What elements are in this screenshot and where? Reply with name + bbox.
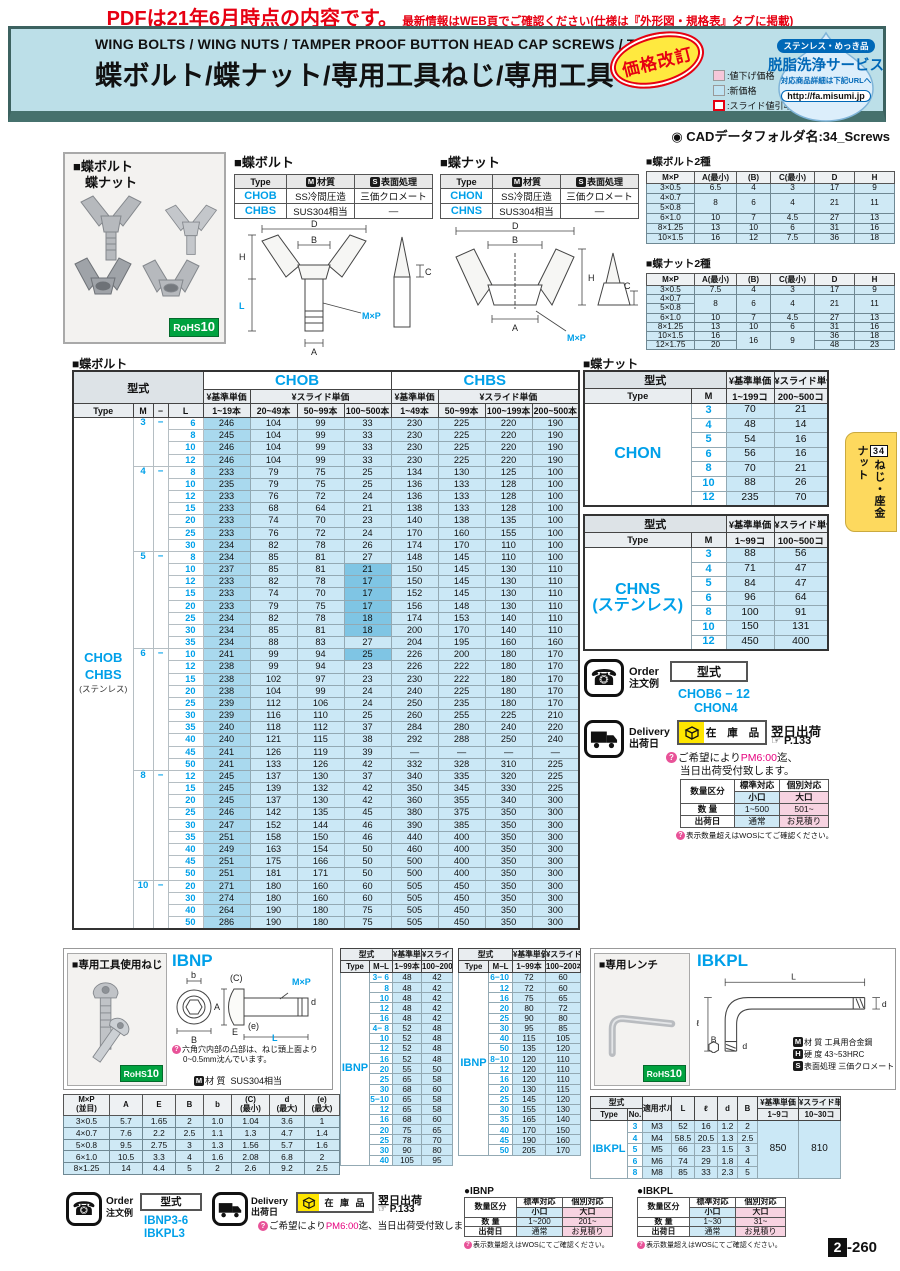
table-cell: —	[485, 746, 532, 758]
ibnp-name: IBNP	[172, 951, 213, 971]
table-cell: 12	[168, 491, 203, 503]
table-cell: 35	[168, 637, 203, 649]
table-cell: 112	[297, 722, 344, 734]
table-cell: 74	[250, 588, 297, 600]
table-cell: 7.5	[771, 234, 815, 244]
table-cell: 400	[438, 844, 485, 856]
table-cell: 350	[485, 856, 532, 868]
table-row: 数 量1~500501~	[681, 803, 829, 815]
table-cell: 78	[297, 612, 344, 624]
table-cell: 4	[737, 184, 771, 194]
table-cell: 11	[855, 194, 895, 214]
table-cell: 160	[438, 527, 485, 539]
table-cell: 190	[532, 454, 579, 466]
table-cell: 81	[297, 564, 344, 576]
table-cell: 58	[422, 1094, 453, 1104]
table-cell: 250	[391, 697, 438, 709]
table-cell: 21	[774, 404, 828, 419]
red-outline-swatch	[713, 100, 725, 111]
table-cell: 40	[168, 904, 203, 916]
table-row: IBNP6−107260	[459, 973, 581, 983]
order-labels: Order 注文例	[106, 1196, 133, 1219]
delivery-icon	[584, 720, 624, 758]
svg-text:M×P: M×P	[362, 311, 381, 321]
table-cell: 58	[422, 1104, 453, 1114]
table-cell: 12	[489, 1064, 513, 1074]
table-cell: 128	[485, 503, 532, 515]
table-cell: 105	[546, 1033, 581, 1043]
table-row: 出荷日通常お見積り	[638, 1227, 786, 1237]
table-cell: 50	[489, 1145, 513, 1155]
service-note: 対応商品詳細は下記URLへ	[761, 75, 891, 86]
wos-note: ?表示数量超えはWOSにてご確認ください。	[637, 1240, 782, 1250]
column-header: 適用ボルト	[643, 1097, 672, 1121]
table-cell: 12	[168, 576, 203, 588]
table-cell: −	[153, 418, 168, 467]
price-revision-badge: 価格改訂	[604, 22, 710, 98]
table-cell: 130	[485, 588, 532, 600]
ibkpl-wrench-photo	[597, 980, 687, 1064]
table-cell: 251	[203, 868, 250, 880]
truck-icon	[218, 1200, 242, 1219]
table-cell: 300	[532, 880, 579, 892]
table-cell: 65	[422, 1125, 453, 1135]
table-cell: 145	[513, 1094, 546, 1104]
table-cell: 246	[203, 807, 250, 819]
table-cell: 205	[513, 1145, 546, 1155]
table-cell: 75	[393, 1125, 422, 1135]
table-cell: 110	[532, 600, 579, 612]
table-cell: 130	[485, 576, 532, 588]
table-cell: 25	[489, 1094, 513, 1104]
order-label-jp: 注文例	[629, 679, 659, 691]
table-cell: 2.5	[738, 1132, 758, 1144]
side-tab-number: 34	[870, 445, 888, 457]
order-labels: Order 注文例	[629, 666, 659, 691]
table-cell: IBNP	[459, 973, 489, 1156]
table-cell: 35	[168, 831, 203, 843]
column-header: ℓ	[695, 1097, 718, 1121]
table-cell: 222	[438, 673, 485, 685]
table-cell: 70	[726, 404, 774, 419]
table-cell: −	[153, 649, 168, 771]
table-cell: 160	[297, 892, 344, 904]
table-cell: 8	[691, 462, 726, 477]
table-cell: 14	[110, 1163, 143, 1175]
table-cell: 65	[393, 1104, 422, 1114]
column-header: A(最小)	[695, 172, 737, 184]
table-row: 4×0.77.62.22.51.11.34.71.4	[64, 1127, 340, 1139]
delivery-label-en: Delivery	[629, 726, 670, 739]
table-cell: 94	[297, 661, 344, 673]
table-cell: 33	[344, 454, 391, 466]
table-row: 8×1.25131063116	[647, 322, 895, 331]
ibnp-photo-box: ■専用工具使用ねじ RoHS10	[67, 953, 167, 1086]
table-cell: 180	[485, 685, 532, 697]
page-number-rest: -260	[847, 1239, 877, 1256]
table-cell: 12	[168, 661, 203, 673]
table-cell: 4	[691, 418, 726, 433]
table-cell: 6	[691, 591, 726, 606]
table-cell: 47	[774, 577, 828, 592]
table-cell: 4	[628, 1132, 643, 1144]
model-box: 型式	[670, 661, 748, 682]
column-header: 100~500コ	[774, 533, 828, 548]
table-cell: 137	[250, 770, 297, 782]
table-cell: 15	[168, 783, 203, 795]
table-cell: 16	[489, 1074, 513, 1084]
table-cell: 220	[485, 430, 532, 442]
table-cell: 16	[370, 1013, 393, 1023]
table-cell: 48	[393, 973, 422, 983]
table-cell: 12×1.75	[647, 341, 695, 350]
table-cell: 1.6	[204, 1151, 232, 1163]
table-cell: 140	[546, 1114, 581, 1124]
table-cell: 166	[297, 856, 344, 868]
table-cell: 116	[250, 710, 297, 722]
table-cell: 155	[485, 527, 532, 539]
table-row: 6×1.01074.52713	[647, 313, 895, 322]
table-cell: 234	[203, 624, 250, 636]
table-cell: 33	[344, 442, 391, 454]
table-cell: 70	[297, 588, 344, 600]
table-cell: 35	[168, 722, 203, 734]
table-cell: 190	[250, 904, 297, 916]
column-header: Type	[584, 533, 691, 548]
table-cell: 247	[203, 819, 250, 831]
table-row: 4×0.78642111	[647, 295, 895, 304]
table-cell: 小口	[690, 1207, 736, 1217]
table-cell: 220	[485, 418, 532, 430]
table-cell: 6×1.0	[647, 313, 695, 322]
bolt-type-table: Type M材質 S表面処理 CHOBSS冷間圧造三価クロメートCHBSSUS3…	[234, 174, 433, 219]
table-cell: 20	[489, 1084, 513, 1094]
table-cell: 48	[726, 418, 774, 433]
rohs-badge: RoHS10	[643, 1065, 686, 1082]
table-cell: 4	[133, 466, 153, 551]
table-cell: 3	[771, 184, 815, 194]
material-badge: M	[194, 1076, 204, 1086]
stock-cube	[679, 722, 704, 743]
table-cell: 45	[489, 1135, 513, 1145]
page-number: 2-260	[828, 1238, 877, 1257]
table-cell: 226	[391, 661, 438, 673]
column-header: 200~500コ	[774, 389, 828, 404]
table-cell: 241	[203, 649, 250, 661]
column-header: (B)	[737, 274, 771, 286]
table-cell: 標準対応	[735, 780, 780, 792]
table-cell: 10	[168, 564, 203, 576]
table-cell: 50	[168, 758, 203, 770]
table-cell: 251	[203, 831, 250, 843]
table-cell: 99	[250, 649, 297, 661]
spec-line: M材 質 工具用合金鋼	[793, 1037, 897, 1049]
table-cell: 2	[176, 1116, 204, 1128]
column-header: 型式	[73, 371, 203, 404]
table-cell: 8	[168, 551, 203, 563]
table-cell: 5	[691, 433, 726, 448]
table-cell: 8	[691, 606, 726, 621]
table-cell: 148	[438, 600, 485, 612]
table-cell: 110	[546, 1074, 581, 1084]
table-cell: 133	[438, 491, 485, 503]
table-cell: 300	[532, 807, 579, 819]
table-cell: 31	[815, 322, 855, 331]
column-header: D	[815, 172, 855, 184]
table-cell: SS冷間圧造	[493, 189, 561, 204]
table-cell: 79	[250, 600, 297, 612]
column-header: 型式	[341, 949, 393, 961]
table-cell: 30	[168, 710, 203, 722]
table-cell: 160	[485, 637, 532, 649]
table-cell: 74	[250, 515, 297, 527]
table-cell: 450	[438, 904, 485, 916]
table-cell: 数 量	[681, 803, 735, 815]
table-cell: 2	[204, 1163, 232, 1175]
table-cell: 4×0.7	[647, 194, 695, 204]
table-cell: 225	[438, 442, 485, 454]
table-cell: 238	[203, 685, 250, 697]
table-cell: 163	[250, 844, 297, 856]
table-cell: 180	[250, 880, 297, 892]
ibnp-dims-table: M×P (並目)A EB b(C) (最小) d (最大)(e) (最大) 3×…	[63, 1094, 340, 1175]
column-header: 50~99本	[297, 404, 344, 418]
svg-text:A: A	[311, 347, 317, 357]
table-cell: 1~500	[735, 803, 780, 815]
ibnp-section: ■専用工具使用ねじ RoHS10 IBNP b B (C) A d (e) E …	[63, 948, 333, 1090]
table-cell: 3×0.5	[64, 1116, 110, 1128]
table-cell: 大口	[780, 791, 829, 803]
table-cell: 160	[546, 1135, 581, 1145]
table-row: 10×1.5161693618	[647, 332, 895, 341]
column-header: ¥基準単価	[203, 390, 250, 404]
table-cell: 505	[391, 892, 438, 904]
table-cell: 80	[513, 1003, 546, 1013]
column-header: S表面処理	[355, 175, 433, 189]
table-cell: 68	[250, 503, 297, 515]
table-cell: 2.6	[232, 1163, 270, 1175]
table-cell: −	[153, 551, 168, 648]
table-cell: 190	[513, 1135, 546, 1145]
side-tab-text: 34ねじ・座金 ナット	[854, 445, 888, 519]
table-cell: 60	[344, 892, 391, 904]
table-cell: 4.5	[771, 214, 815, 224]
page-ref[interactable]: ☞ P.133	[771, 734, 811, 747]
table-cell: CHNS	[441, 204, 493, 219]
table-cell: 6	[771, 322, 815, 331]
column-header: Type	[591, 1109, 628, 1121]
table-cell: 42	[422, 1003, 453, 1013]
table-cell: −	[153, 880, 168, 929]
table-cell: 225	[438, 685, 485, 697]
table-cell: 16	[370, 1114, 393, 1124]
table-cell: 6	[737, 295, 771, 313]
table-cell: 75	[297, 466, 344, 478]
table-cell: 350	[391, 783, 438, 795]
table-cell: 1.0	[204, 1116, 232, 1128]
column-header: ¥基準単価	[513, 949, 546, 961]
table-cell: 6	[168, 418, 203, 430]
table-cell: 95	[513, 1023, 546, 1033]
column-header: M−L	[370, 961, 393, 973]
table-cell: 数 量	[638, 1217, 690, 1227]
table-cell: 400	[438, 856, 485, 868]
table-cell: 9	[771, 332, 815, 350]
table-cell: 170	[532, 697, 579, 709]
table-cell: 21	[344, 503, 391, 515]
order-example: CHOB6 − 12	[678, 687, 750, 701]
table-cell: 82	[250, 576, 297, 588]
table-cell: 52	[393, 1054, 422, 1064]
table-cell: 5	[691, 577, 726, 592]
table-row: 6×1.01074.52713	[647, 214, 895, 224]
table-cell: 7.5	[695, 286, 737, 295]
table-cell: 245	[203, 795, 250, 807]
table-cell: 158	[250, 831, 297, 843]
table-cell: 500	[391, 856, 438, 868]
table-cell: 72	[513, 973, 546, 983]
table-cell: 132	[297, 783, 344, 795]
table-cell: 47	[774, 562, 828, 577]
column-header: M	[133, 404, 153, 418]
table-cell: 75	[297, 600, 344, 612]
table-cell: 42	[422, 983, 453, 993]
table-cell: 170	[438, 539, 485, 551]
table-cell: 135	[297, 807, 344, 819]
table-cell: 460	[391, 844, 438, 856]
table-cell: 160	[297, 880, 344, 892]
table-cell: 3− 6	[370, 973, 393, 983]
table-cell: 136	[391, 478, 438, 490]
table-cell: 4	[176, 1151, 204, 1163]
page-ref[interactable]: ☞ P.133	[378, 1204, 415, 1215]
pink-swatch	[713, 70, 725, 81]
table-cell: 25	[370, 1135, 393, 1145]
table-cell: 52	[393, 1033, 422, 1043]
table-cell: 三価クロメート	[561, 189, 639, 204]
table-cell: 48	[422, 1033, 453, 1043]
table-cell: 500	[391, 868, 438, 880]
table-cell: 68	[393, 1084, 422, 1094]
table-cell: 58.5	[672, 1132, 695, 1144]
table-cell: 450	[726, 635, 774, 650]
table-cell: 350	[485, 819, 532, 831]
table-cell: 190	[250, 917, 297, 929]
table-cell: 4	[738, 1155, 758, 1167]
table-cell: 220	[485, 454, 532, 466]
column-header: 型式	[591, 1097, 643, 1109]
table-cell: 137	[250, 795, 297, 807]
table-cell: 85	[546, 1023, 581, 1033]
table-cell: 150	[391, 576, 438, 588]
table-row: 8×1.25131063116	[647, 224, 895, 234]
table-cell: —	[561, 204, 639, 219]
table-cell: CHON	[441, 189, 493, 204]
column-header: S表面処理	[561, 175, 639, 189]
nut-spec-section: ■蝶ナット Type M材質 S表面処理 CHONSS冷間圧造三価クロメートCH…	[440, 152, 640, 366]
table-cell: 26	[774, 476, 828, 491]
table-row: 3×0.55.71.6521.01.043.61	[64, 1116, 340, 1128]
table-row: IBNP3− 64842	[341, 973, 453, 983]
table-cell: 355	[438, 795, 485, 807]
column-header: 20~49本	[250, 404, 297, 418]
table-cell: 数量区分	[465, 1198, 517, 1218]
table-cell: 27	[815, 313, 855, 322]
table-cell: 810	[799, 1121, 841, 1179]
table-cell: 340	[485, 795, 532, 807]
table-cell: 126	[250, 746, 297, 758]
service-url-link[interactable]: http://fa.misumi.jp	[781, 90, 871, 102]
table-cell: 233	[203, 600, 250, 612]
table-cell: −	[153, 770, 168, 880]
model-box: 型式	[140, 1193, 202, 1211]
table-cell: 380	[391, 807, 438, 819]
table-cell: 25	[489, 1013, 513, 1023]
table-cell: SS冷間圧造	[287, 189, 355, 204]
table-cell: 12	[168, 454, 203, 466]
table-cell: 1.6	[305, 1139, 340, 1151]
table-row: IBKPL3M352161.22850810	[591, 1121, 841, 1133]
table-cell: 6×1.0	[647, 214, 695, 224]
table-cell: 13	[855, 313, 895, 322]
wos-note: ?表示数量超えはWOSにてご確認ください。	[676, 830, 833, 841]
table-cell: IBNP	[341, 973, 370, 1166]
table-cell: 110	[532, 612, 579, 624]
table-cell: 2.5	[176, 1127, 204, 1139]
table-cell: 385	[438, 819, 485, 831]
table-cell: 3×0.5	[647, 184, 695, 194]
ibkpl-specs: M材 質 工具用合金鋼 H硬 度 43~53HRC S表面処理 三価クロメート	[793, 1037, 897, 1073]
quantity-table-ibnp: 数量区分標準対応個別対応小口大口数 量1~200201~出荷日通常お見積り	[464, 1197, 613, 1237]
table-cell: 390	[391, 819, 438, 831]
section-title: ■蝶ナット2種	[646, 256, 896, 271]
svg-text:L: L	[272, 1033, 278, 1043]
table-cell: 出荷日	[638, 1227, 690, 1237]
table-cell: 220	[485, 442, 532, 454]
column-header: Type	[341, 961, 370, 973]
table-cell: 2.5	[305, 1163, 340, 1175]
table-cell: 60	[344, 880, 391, 892]
table-cell: 20	[370, 1064, 393, 1074]
column-header: 1~199コ	[726, 389, 774, 404]
table-cell: 20	[168, 515, 203, 527]
table-cell: 45	[168, 746, 203, 758]
ibnp-material: M材 質 SUS304相当	[194, 1074, 282, 1087]
table-cell: 225	[532, 783, 579, 795]
table-cell: 60	[546, 973, 581, 983]
table-cell: 36	[815, 332, 855, 341]
table-cell: 10.5	[110, 1151, 143, 1163]
table-cell: 83	[297, 637, 344, 649]
table-cell: 4	[691, 562, 726, 577]
table-cell: 400	[774, 635, 828, 650]
table-row: 4×0.78642111	[647, 194, 895, 204]
table-cell: 120	[546, 1094, 581, 1104]
table-cell: 99	[297, 430, 344, 442]
table-cell: 100	[532, 478, 579, 490]
legend-label: :新価格	[727, 84, 757, 97]
table-cell: 152	[250, 819, 297, 831]
table-cell: 40	[168, 844, 203, 856]
table-cell: 150	[726, 620, 774, 635]
table-cell: 10	[691, 620, 726, 635]
table-cell: 10	[695, 214, 737, 224]
column-header: ¥スライド単価	[546, 949, 581, 961]
table-cell: 8	[695, 194, 737, 214]
svg-text:d: d	[742, 1041, 747, 1051]
table-cell: 5×0.8	[647, 304, 695, 313]
table-cell: 16	[737, 332, 771, 350]
